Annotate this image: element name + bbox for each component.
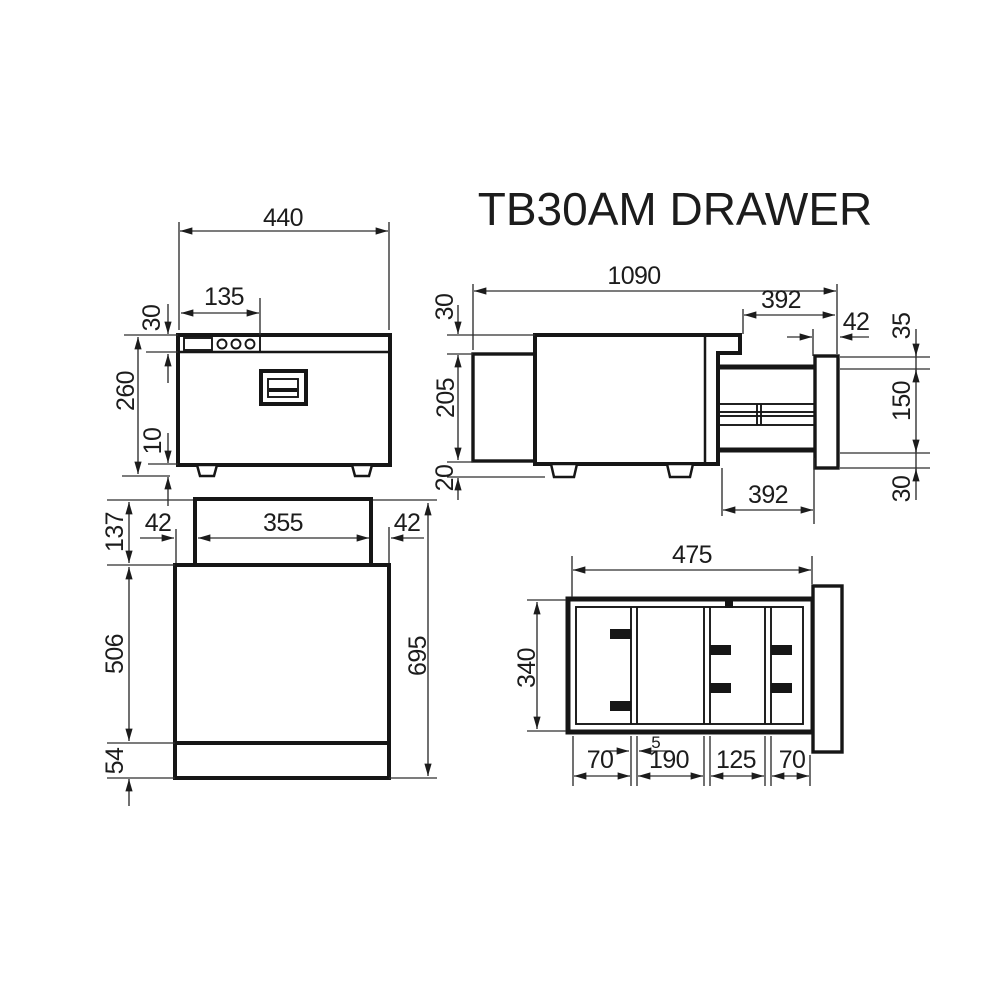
tb30am-drawing: TB30AM DRAWER 440 135: [0, 0, 1000, 1000]
dim-plan-right-inset: 42: [389, 509, 424, 563]
dim-label: 35: [888, 313, 916, 340]
dim-label: 190: [649, 746, 689, 774]
dim-label: 70: [587, 746, 614, 774]
side-view: 1090 392 42 35 150 30: [431, 262, 930, 524]
control-button-icon: [232, 340, 241, 349]
rear-unit-box: [473, 354, 535, 461]
dim-plan-body-depth: 506: [101, 567, 129, 741]
dim-drawer-width: 475: [572, 541, 812, 597]
divider-2: [704, 601, 733, 724]
dim-label: 20: [431, 465, 459, 492]
drawer-interior-view: 475 340 5: [513, 541, 842, 786]
dim-label: 30: [431, 294, 459, 321]
dim-label: 70: [779, 746, 806, 774]
dim-drawer-compartments: 70 190 125 70: [574, 746, 809, 776]
dim-label: 392: [748, 481, 788, 509]
divider-clip: [710, 645, 731, 655]
display-window: [184, 338, 212, 350]
drawer-front-panel-side: [815, 356, 838, 468]
dim-side-slide-top: 392: [743, 286, 835, 334]
dim-label: 1090: [607, 262, 660, 290]
drawer-front-panel: [813, 586, 842, 752]
drawer-box-outline: [568, 599, 813, 732]
dim-label: 392: [761, 286, 801, 314]
front-view: 440 135 30 260 10: [112, 204, 390, 506]
dim-side-left-stack: 30 205 20: [431, 294, 545, 500]
slide-rail-upper: [718, 404, 815, 412]
dim-label: 340: [513, 648, 541, 688]
front-cabinet-outline: [178, 335, 390, 465]
divider-1: [610, 607, 637, 724]
dim-label: 125: [716, 746, 756, 774]
front-foot-right: [352, 465, 372, 476]
dim-plan-total-depth: 695: [373, 500, 437, 778]
side-foot-right: [667, 464, 693, 477]
front-foot-left: [197, 465, 217, 476]
dim-label: 42: [843, 308, 870, 336]
dim-front-foot: 10: [139, 428, 178, 506]
drawing-title: TB30AM DRAWER: [478, 183, 872, 235]
side-cabinet-outline: [535, 335, 740, 464]
dim-label: 695: [404, 636, 432, 676]
dim-plan-left-inset: 42: [140, 509, 176, 563]
plan-view: 137 42 355 42 506 54: [101, 499, 437, 806]
control-button-icon: [246, 340, 255, 349]
technical-drawing-sheet: TB30AM DRAWER 440 135: [0, 0, 1000, 1000]
divider-clip: [771, 645, 792, 655]
dim-label: 54: [101, 747, 129, 774]
divider-clip: [771, 683, 792, 693]
dim-label: 355: [263, 509, 303, 537]
side-foot-left: [551, 464, 577, 477]
dim-label: 30: [138, 305, 166, 332]
dim-label: 42: [394, 509, 421, 537]
dim-label: 30: [888, 476, 916, 503]
slide-rail-lower: [718, 416, 815, 425]
dim-label: 205: [432, 378, 460, 418]
divider-clip: [710, 683, 731, 693]
dim-label: 506: [101, 634, 129, 674]
dim-label: 150: [888, 381, 916, 421]
dim-side-right-stack: 35 150 30: [840, 313, 930, 503]
dim-side-slide-bottom: 392: [722, 458, 814, 524]
dim-label: 42: [145, 509, 172, 537]
plan-body: [175, 565, 389, 778]
divider-3: [765, 607, 792, 724]
dim-label: 440: [263, 204, 303, 232]
control-button-icon: [218, 340, 227, 349]
dim-plan-front-strip: 54: [101, 743, 175, 806]
dim-front-control-panel: 135: [181, 283, 260, 335]
dim-label: 137: [101, 512, 129, 552]
divider-clip: [610, 701, 631, 711]
dim-plan-cutout: 355: [198, 509, 369, 538]
dim-label: 260: [112, 371, 140, 411]
dim-label: 475: [672, 541, 712, 569]
divider-clip: [725, 601, 733, 608]
dim-drawer-depth: 340: [513, 600, 566, 731]
dim-label: 10: [139, 428, 167, 455]
dim-front-width: 440: [179, 204, 389, 330]
divider-clip: [610, 629, 631, 639]
dim-label: 135: [204, 283, 244, 311]
